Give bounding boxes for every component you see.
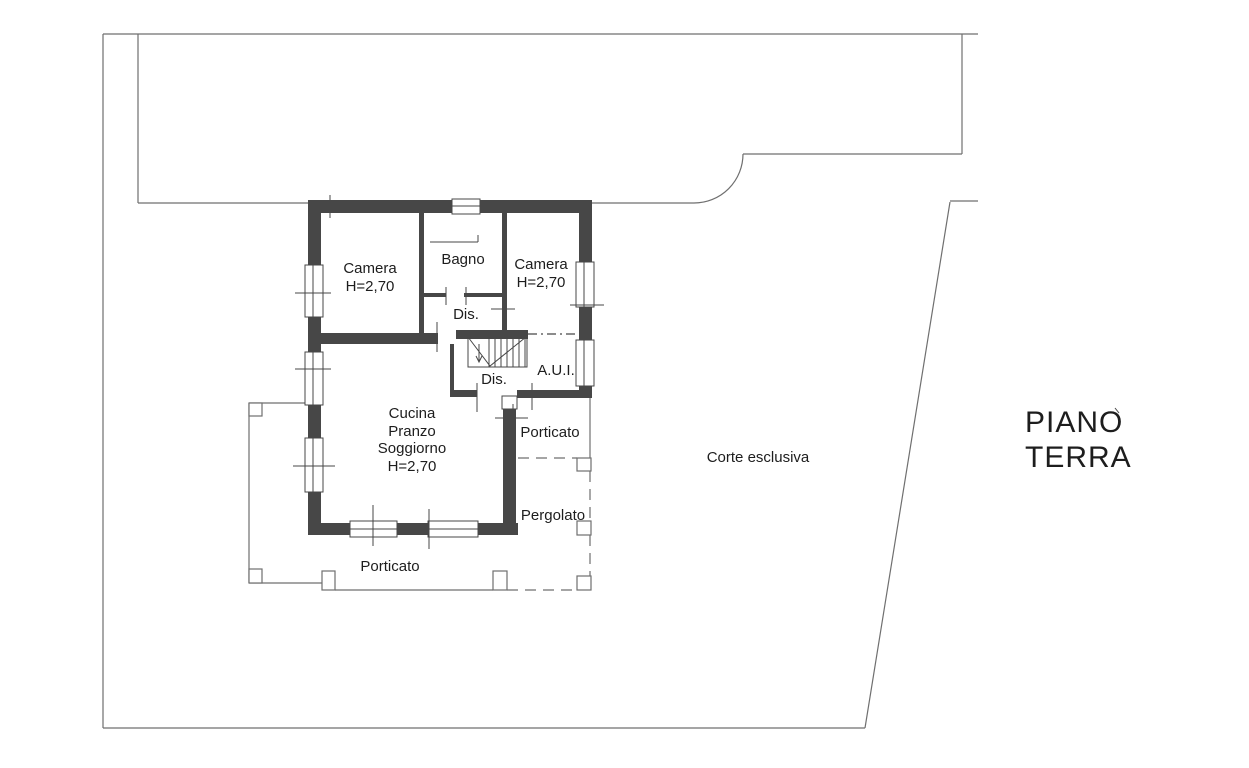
porch-post — [322, 571, 335, 590]
room-label-camera-left: Camera — [343, 260, 397, 277]
floor-title-line1: PIANO — [1025, 406, 1123, 439]
window-icon — [576, 262, 594, 307]
room-label-camera-right: Camera — [514, 256, 568, 273]
pergola-post — [577, 458, 591, 471]
stairs-icon — [468, 336, 527, 367]
floor-title: PIANO TERRA — [1025, 406, 1132, 474]
room-label-porticato-east: Porticato — [520, 424, 579, 441]
window-icon — [576, 340, 594, 386]
pergola-post — [577, 576, 591, 590]
porch-post — [249, 569, 262, 583]
room-label-cucina-1: Cucina — [389, 405, 436, 422]
porch-post — [249, 403, 262, 416]
room-label-porticato-south: Porticato — [360, 558, 419, 575]
window-icon — [305, 438, 323, 492]
room-height-camera-right: H=2,70 — [517, 274, 566, 291]
window-icon — [305, 265, 323, 317]
door-step — [502, 396, 517, 409]
label-corte-esclusiva: Corte esclusiva — [707, 449, 810, 466]
window-icon — [305, 352, 323, 405]
room-label-cucina-3: Soggiorno — [378, 440, 446, 457]
floor-title-line2: TERRA — [1025, 441, 1132, 474]
room-label-pergolato: Pergolato — [521, 507, 585, 524]
room-label-cucina-2: Pranzo — [388, 423, 436, 440]
porch-post — [493, 571, 507, 590]
room-label-cucina-4: H=2,70 — [388, 458, 437, 475]
floor-plan-drawing: Camera H=2,70 Bagno Camera H=2,70 Dis. D… — [0, 0, 1249, 768]
room-label-dis-upper: Dis. — [453, 306, 479, 323]
room-label-aui: A.U.I. — [537, 362, 575, 379]
room-height-camera-left: H=2,70 — [346, 278, 395, 295]
site-boundary — [103, 34, 978, 728]
bagno-fixture — [430, 235, 478, 242]
room-label-bagno: Bagno — [441, 251, 484, 268]
room-label-dis-lower: Dis. — [481, 371, 507, 388]
floor-plan-canvas: Camera H=2,70 Bagno Camera H=2,70 Dis. D… — [0, 0, 1249, 768]
